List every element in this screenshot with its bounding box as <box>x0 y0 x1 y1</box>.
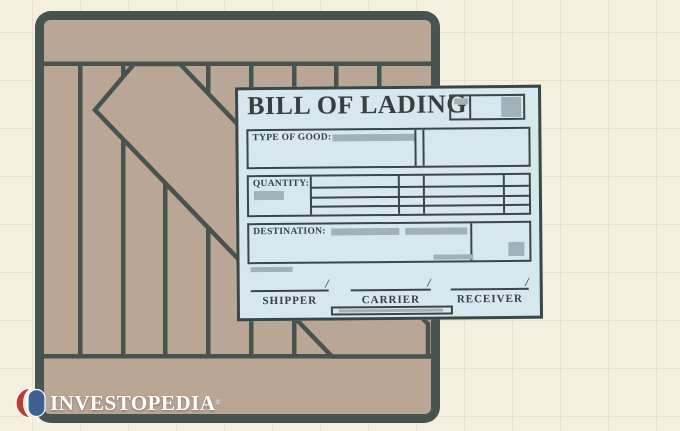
investopedia-logo-icon <box>15 386 46 420</box>
placeholder-bar <box>332 134 414 142</box>
document-title: BILL OF LADING <box>247 89 467 121</box>
signature-line <box>251 290 329 293</box>
logo-wordmark: INVESTOPEDIA <box>50 391 216 416</box>
header-box-divider <box>469 96 471 118</box>
receiver-label: RECEIVER <box>451 293 529 306</box>
quantity-label: QUANTITY: <box>253 179 309 189</box>
shipper-label: SHIPPER <box>251 295 329 308</box>
carrier-signature-block: / CARRIER <box>351 277 431 310</box>
destination-label: DESTINATION: <box>253 227 326 238</box>
logo-blue-lens <box>28 390 45 417</box>
bill-of-lading-document: BILL OF LADING TYPE OF GOOD: QUANTITY: D… <box>235 85 543 322</box>
destination-field: DESTINATION: <box>247 221 531 264</box>
receiver-signature-block: / RECEIVER <box>451 276 529 309</box>
type-of-good-field: TYPE OF GOOD: <box>246 127 530 169</box>
quantity-field: QUANTITY: <box>247 173 531 217</box>
carrier-label: CARRIER <box>351 294 431 307</box>
header-stamp-box <box>449 94 525 121</box>
signature-line <box>351 289 431 292</box>
registered-mark: ® <box>216 399 221 407</box>
video-frame: { "scene": { "description_colors": { "ba… <box>0 0 680 431</box>
type-of-good-label: TYPE OF GOOD: <box>252 132 331 143</box>
table-row-line <box>310 204 529 208</box>
table-row-line <box>310 195 529 199</box>
table-row-line <box>310 185 529 189</box>
placeholder-square <box>501 97 521 117</box>
signature-line <box>451 288 529 291</box>
field-divider <box>422 130 424 166</box>
field-divider <box>414 130 416 166</box>
placeholder-bar <box>254 191 284 200</box>
placeholder-bar <box>339 309 443 313</box>
shipper-signature-block: / SHIPPER <box>251 278 329 311</box>
investopedia-logo: INVESTOPEDIA ® <box>15 386 221 420</box>
placeholder-square <box>508 242 524 256</box>
document-footer-box <box>331 305 453 315</box>
placeholder-bar <box>433 254 473 259</box>
placeholder-bar <box>331 228 399 236</box>
placeholder-bar <box>454 98 468 104</box>
placeholder-bar <box>405 227 467 235</box>
placeholder-bar <box>251 267 293 272</box>
